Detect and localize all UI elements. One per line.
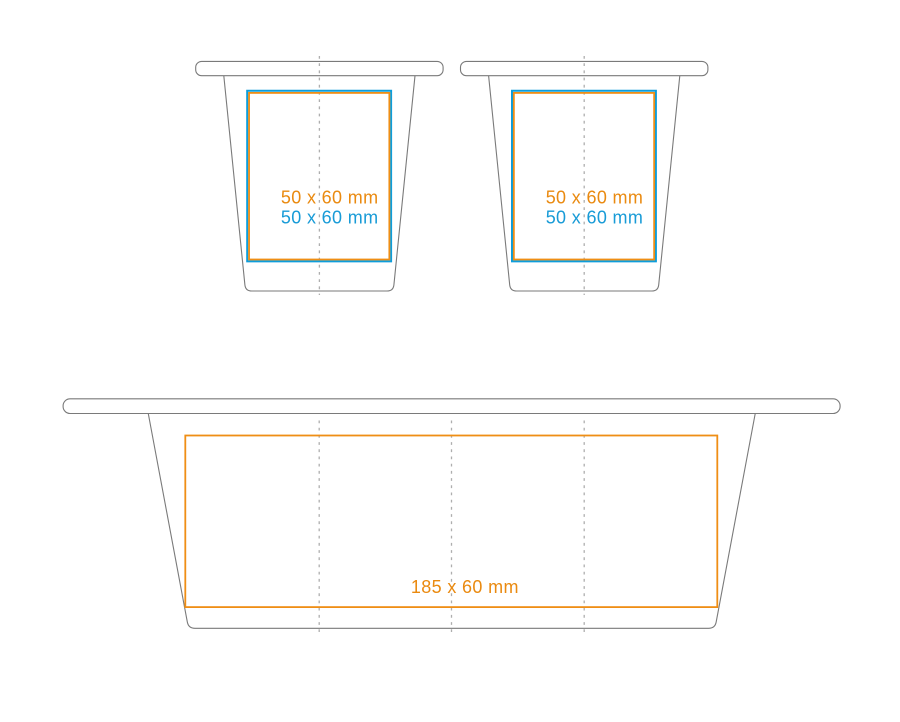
svg-text:185 x 60 mm: 185 x 60 mm bbox=[411, 577, 519, 597]
